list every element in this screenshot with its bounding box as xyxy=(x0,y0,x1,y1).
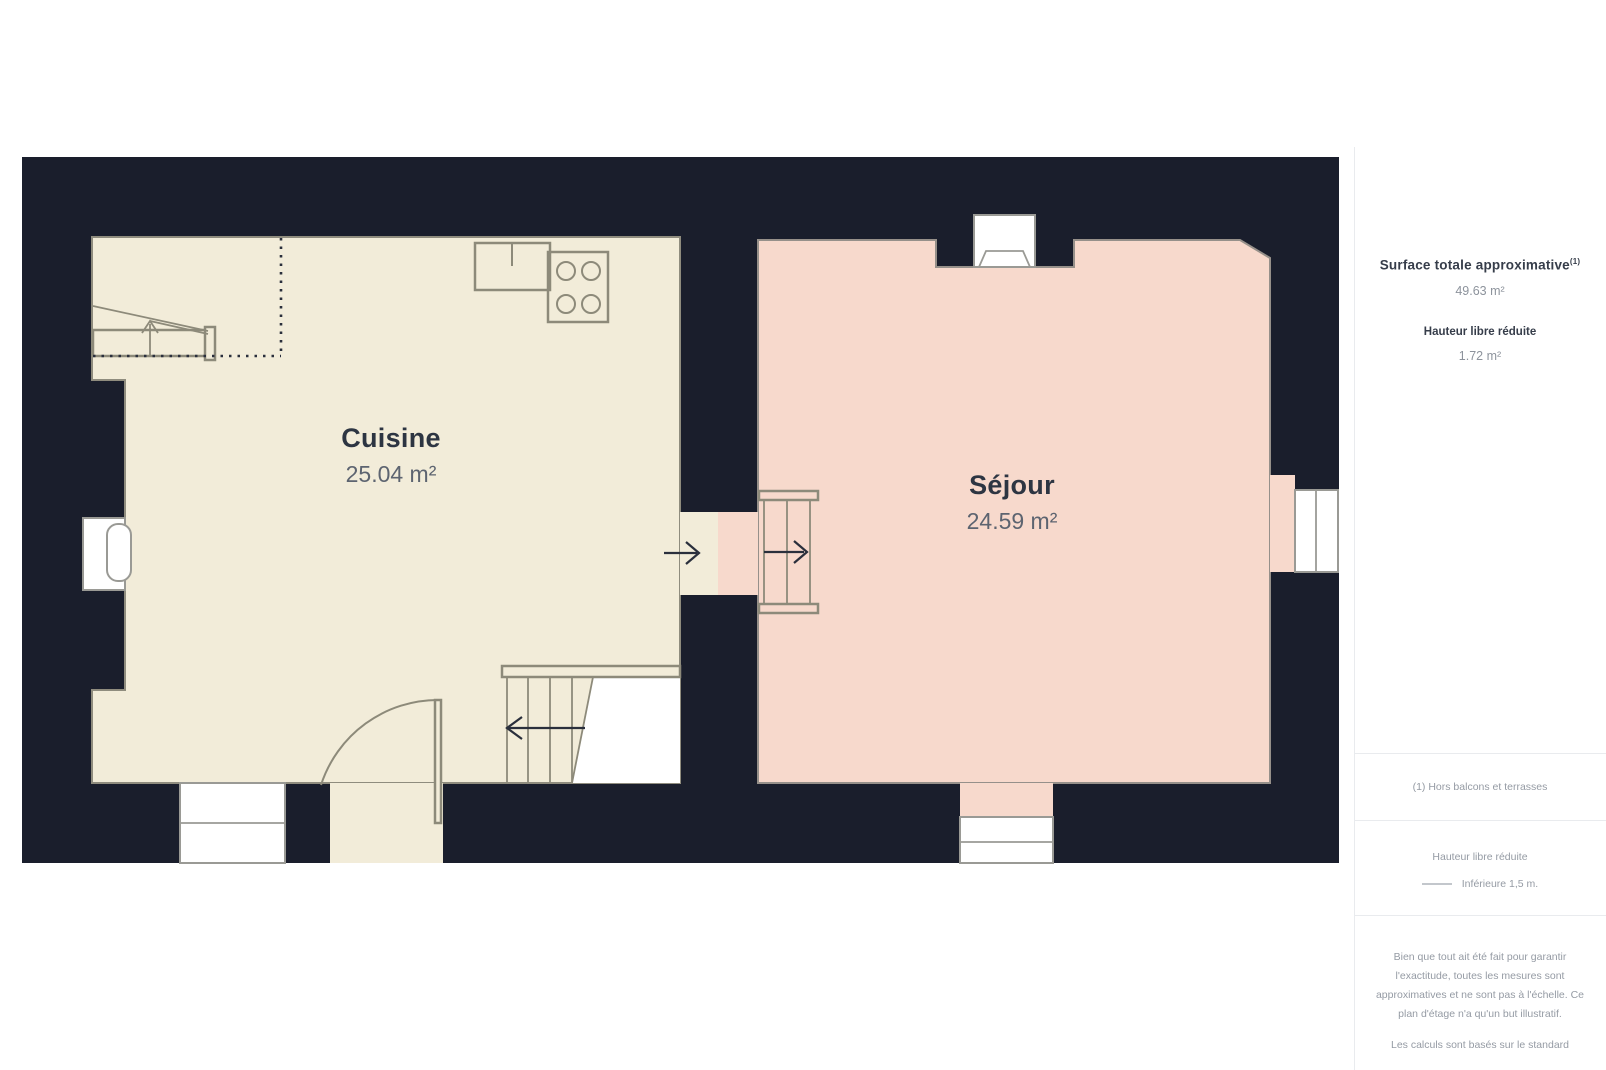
reduced-height-label: Hauteur libre réduite xyxy=(1354,326,1606,338)
room-name: Cuisine xyxy=(271,423,511,454)
legend-row: Inférieure 1,5 m. xyxy=(1354,878,1606,890)
disclaimer-paragraph-2: Les calculs sont basés sur le standard xyxy=(1366,1036,1594,1055)
room-label-cuisine: Cuisine 25.04 m² xyxy=(271,423,511,488)
room-area: 25.04 m² xyxy=(271,461,511,488)
sink-icon xyxy=(475,243,550,290)
sejour-bottom-window-recess xyxy=(960,783,1053,817)
room-name: Séjour xyxy=(892,470,1132,501)
legend-dash-icon xyxy=(1422,883,1452,885)
legend-item-label: Inférieure 1,5 m. xyxy=(1462,878,1538,890)
surface-total-value: 49.63 m² xyxy=(1354,284,1606,298)
kitchen-left-window-casement xyxy=(107,524,131,581)
footnote-section: (1) Hors balcons et terrasses xyxy=(1354,753,1606,820)
legend-section: Hauteur libre réduite Inférieure 1,5 m. xyxy=(1354,820,1606,915)
sejour-right-window-recess xyxy=(1270,475,1295,572)
footnote-text: (1) Hors balcons et terrasses xyxy=(1413,781,1548,793)
surface-summary-section: Surface totale approximative(1) 49.63 m²… xyxy=(1354,0,1606,753)
info-sidebar: Surface totale approximative(1) 49.63 m²… xyxy=(1354,0,1606,1070)
disclaimer-paragraph: Bien que tout ait été fait pour garantir… xyxy=(1366,948,1594,1024)
footnote-marker: (1) xyxy=(1570,257,1580,266)
sejour-bottom-window xyxy=(960,817,1053,863)
passage-floor-sejour-side xyxy=(718,512,758,595)
disclaimer-section: Bien que tout ait été fait pour garantir… xyxy=(1354,915,1606,1070)
kitchen-door-opening xyxy=(330,783,443,863)
reduced-height-value: 1.72 m² xyxy=(1354,349,1606,363)
floorplan-viewer-page: Cuisine 25.04 m² Séjour 24.59 m² Surface… xyxy=(0,0,1606,1070)
legend-title: Hauteur libre réduite xyxy=(1354,851,1606,863)
room-area: 24.59 m² xyxy=(892,508,1132,535)
room-label-sejour: Séjour 24.59 m² xyxy=(892,470,1132,535)
surface-total-label: Surface totale approximative(1) xyxy=(1354,257,1606,273)
